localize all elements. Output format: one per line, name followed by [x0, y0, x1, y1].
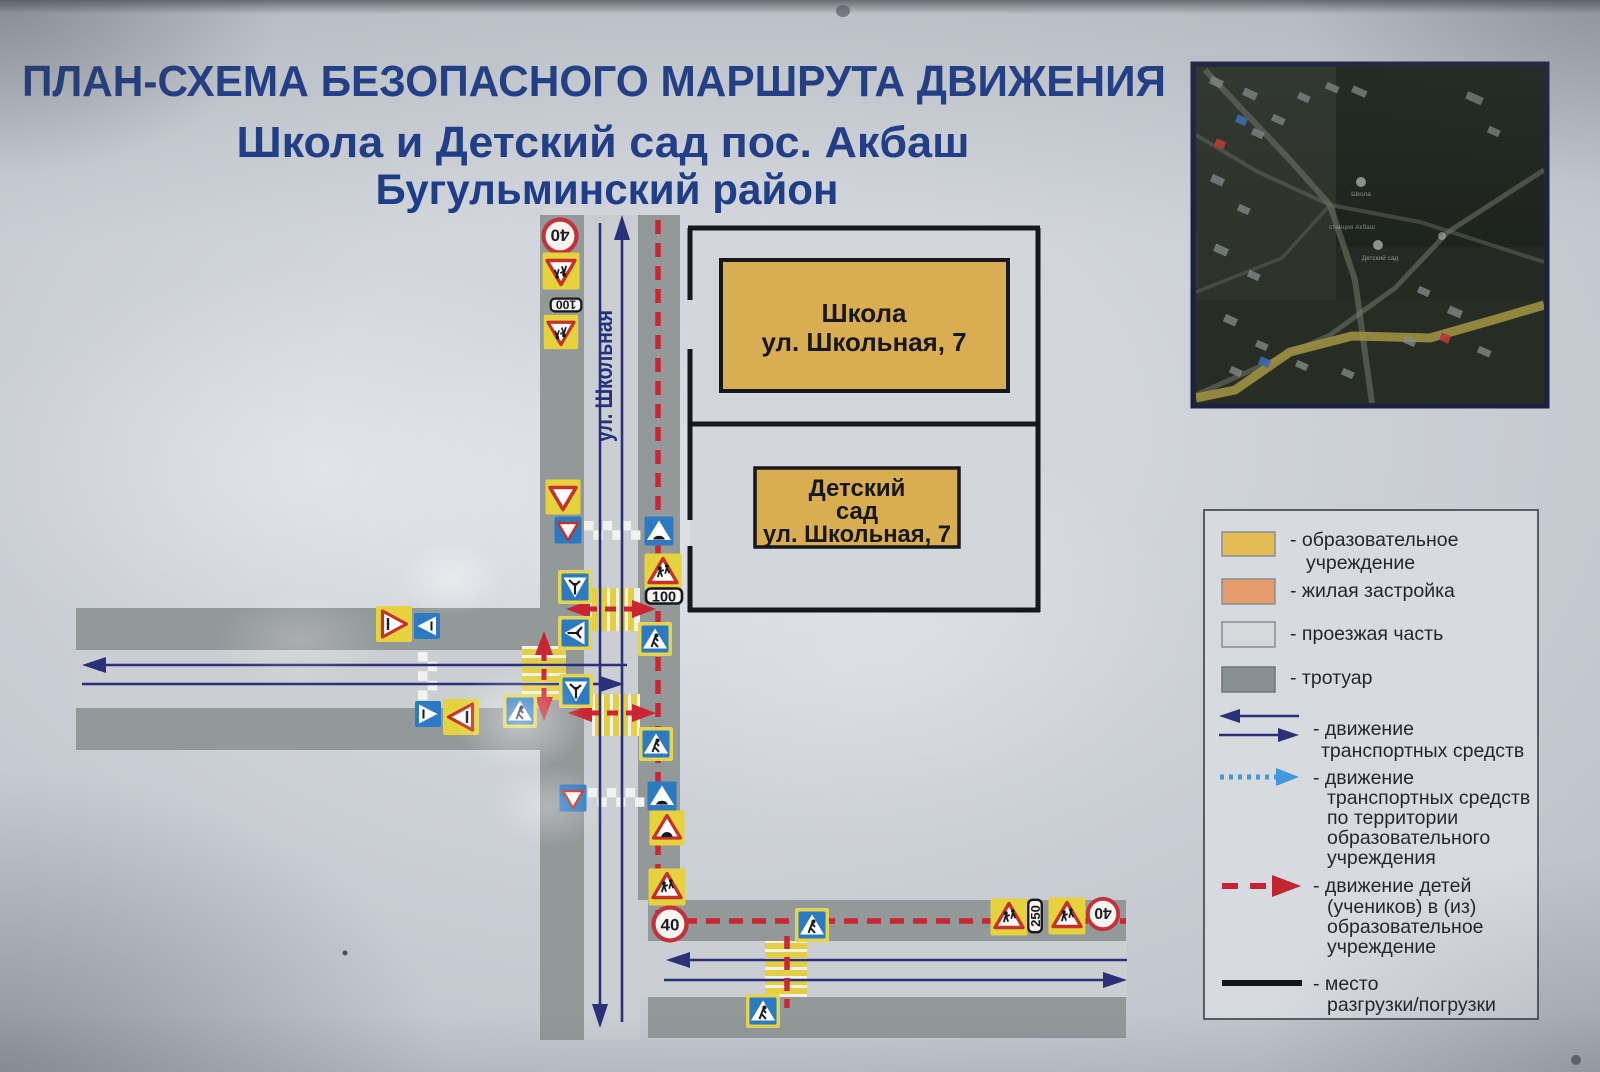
svg-text:по территории: по территории — [1327, 807, 1458, 829]
svg-text:станция Акбаш: станция Акбаш — [1329, 223, 1375, 231]
svg-text:учреждение: учреждение — [1327, 936, 1436, 958]
svg-text:ул. Школьная, 7: ул. Школьная, 7 — [763, 521, 951, 548]
svg-text:- жилая застройка: - жилая застройка — [1290, 580, 1455, 602]
svg-text:транспортных средств: транспортных средств — [1321, 740, 1524, 762]
svg-text:Школа: Школа — [1351, 191, 1371, 198]
svg-text:учреждения: учреждения — [1327, 847, 1436, 869]
svg-text:- место: - место — [1313, 973, 1379, 995]
svg-text:Школа: Школа — [821, 298, 907, 328]
svg-text:ул. Школьная: ул. Школьная — [591, 310, 618, 442]
svg-text:- проезжая часть: - проезжая часть — [1290, 623, 1443, 645]
svg-text:образовательного: образовательного — [1327, 827, 1490, 849]
svg-text:образовательное: образовательное — [1327, 916, 1484, 938]
svg-text:- движение детей: - движение детей — [1313, 875, 1471, 897]
svg-text:- движение: - движение — [1313, 767, 1414, 789]
svg-text:- образовательное: - образовательное — [1290, 529, 1458, 551]
svg-text:ул. Школьная, 7: ул. Школьная, 7 — [762, 327, 967, 357]
svg-text:ПЛАН-СХЕМА БЕЗОПАСНОГО МАРШРУТ: ПЛАН-СХЕМА БЕЗОПАСНОГО МАРШРУТА ДВИЖЕНИЯ — [22, 57, 1166, 106]
svg-text:- движение: - движение — [1313, 718, 1414, 740]
svg-text:транспортных средств: транспортных средств — [1327, 787, 1530, 809]
svg-text:(учеников) в (из): (учеников) в (из) — [1327, 896, 1476, 918]
svg-text:Школа и Детский сад пос. Акбаш: Школа и Детский сад пос. Акбаш — [237, 118, 970, 167]
svg-text:учреждение: учреждение — [1306, 552, 1415, 574]
svg-text:разгрузки/погрузки: разгрузки/погрузки — [1327, 994, 1496, 1016]
svg-text:Детский сад: Детский сад — [1362, 254, 1399, 262]
svg-text:- тротуар: - тротуар — [1290, 667, 1373, 689]
svg-text:Бугульминский район: Бугульминский район — [376, 166, 839, 214]
